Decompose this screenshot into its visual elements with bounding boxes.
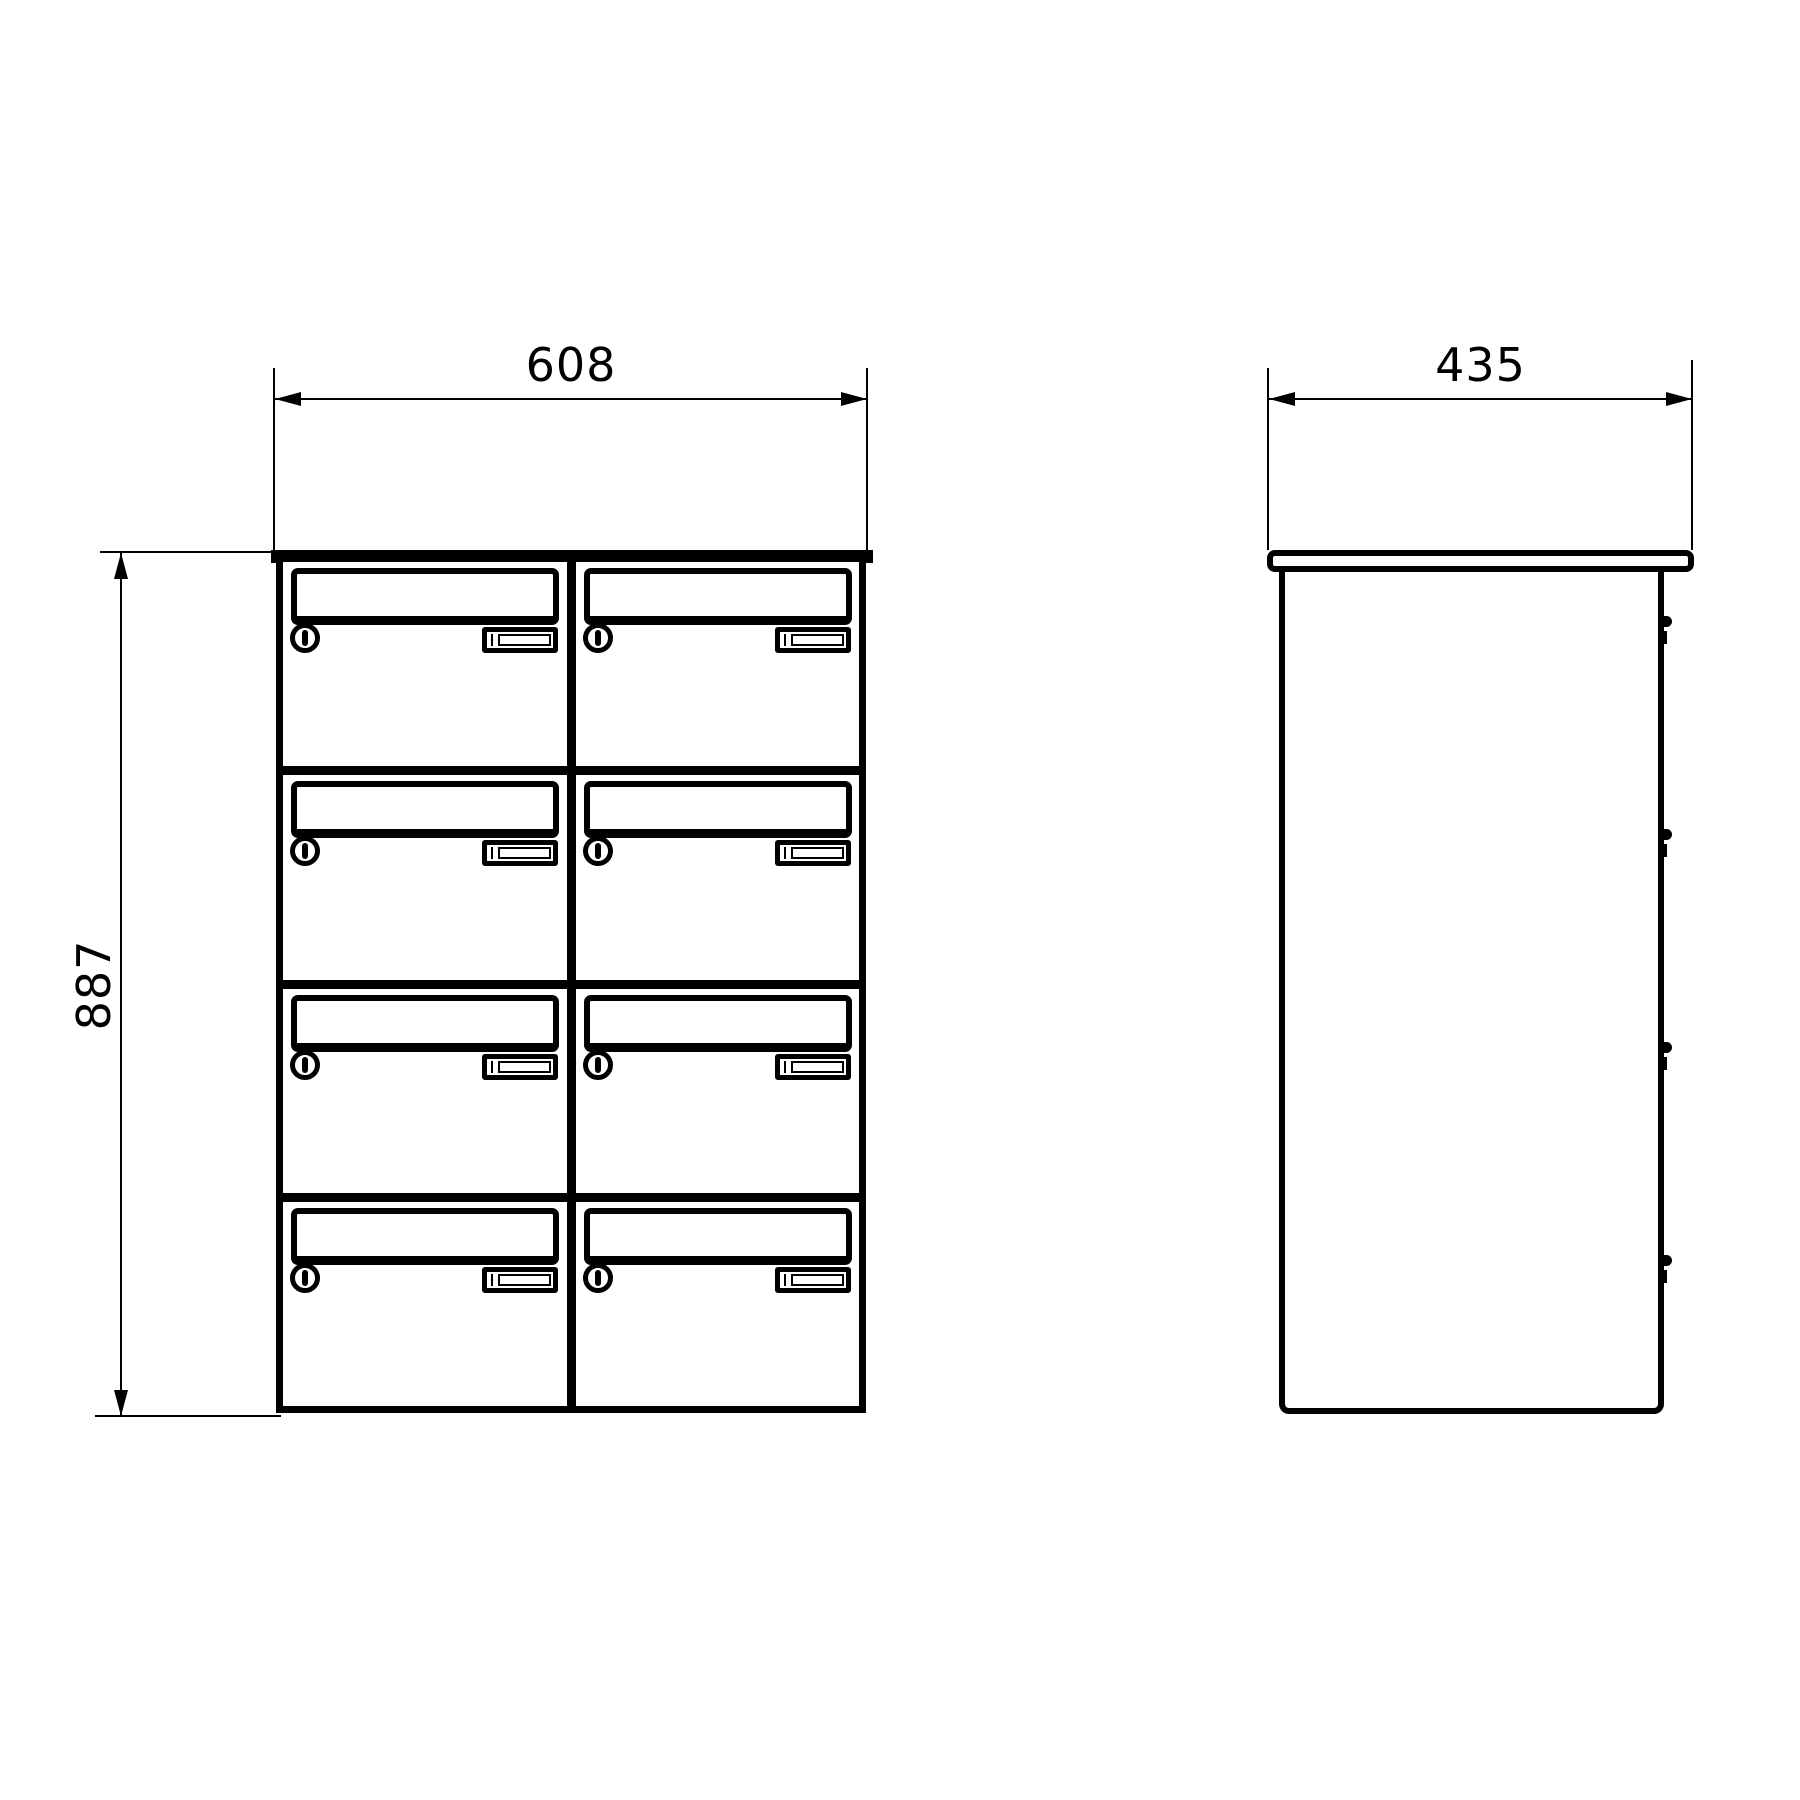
arrowhead-right-icon — [841, 392, 867, 406]
mailbox-cell — [576, 562, 860, 766]
hinge-strip-icon — [1658, 844, 1667, 857]
letter-flap — [291, 995, 559, 1052]
side-view-body — [1279, 571, 1664, 1414]
hinge-strip-icon — [1658, 1057, 1667, 1070]
keyhole-slot-icon — [595, 630, 601, 646]
dimension-line — [275, 398, 867, 400]
mailbox-cell — [283, 562, 567, 766]
keyhole-slot-icon — [302, 1057, 308, 1073]
name-plate — [775, 1267, 851, 1293]
name-plate-divider — [491, 634, 493, 646]
name-plate-divider — [784, 1061, 786, 1073]
mailbox-cell — [576, 775, 860, 979]
name-plate-window — [498, 1061, 551, 1073]
hinge-strip-icon — [1658, 631, 1667, 644]
letter-flap — [584, 781, 852, 838]
keyhole-slot-icon — [302, 843, 308, 859]
arrowhead-right-icon — [1666, 392, 1692, 406]
mailbox-cell — [576, 989, 860, 1193]
keyhole-slot-icon — [595, 1057, 601, 1073]
name-plate-window — [791, 847, 844, 859]
dimension-depth-label: 435 — [1269, 342, 1692, 388]
dimension-width-label: 608 — [275, 342, 867, 388]
hinge-nub-icon — [1658, 616, 1672, 627]
mailbox-cell — [283, 1202, 567, 1406]
keyhole-slot-icon — [302, 1270, 308, 1286]
name-plate-divider — [491, 1061, 493, 1073]
name-plate — [482, 1054, 558, 1080]
name-plate-window — [498, 634, 551, 646]
side-view-roof-cap — [1267, 550, 1694, 572]
keyhole-slot-icon — [302, 630, 308, 646]
name-plate-divider — [491, 847, 493, 859]
name-plate — [482, 840, 558, 866]
keyhole-slot-icon — [595, 1270, 601, 1286]
name-plate — [775, 1054, 851, 1080]
lock-cylinder-icon — [290, 836, 320, 866]
lock-cylinder-icon — [583, 623, 613, 653]
keyhole-slot-icon — [595, 843, 601, 859]
hinge-nub-icon — [1658, 829, 1672, 840]
name-plate-divider — [784, 847, 786, 859]
name-plate — [775, 840, 851, 866]
lock-cylinder-icon — [583, 836, 613, 866]
lock-cylinder-icon — [290, 623, 320, 653]
letter-flap — [291, 781, 559, 838]
mailbox-cell — [576, 1202, 860, 1406]
hinge-nub-icon — [1658, 1255, 1672, 1266]
name-plate — [775, 627, 851, 653]
front-view-mailbox-grid — [276, 562, 866, 1413]
name-plate — [482, 1267, 558, 1293]
name-plate-divider — [491, 1274, 493, 1286]
name-plate-window — [791, 634, 844, 646]
arrowhead-left-icon — [1269, 392, 1295, 406]
name-plate-window — [791, 1274, 844, 1286]
dimension-height-label: 887 — [71, 885, 117, 1085]
extension-line — [1691, 360, 1693, 550]
name-plate-window — [791, 1061, 844, 1073]
drawing-canvas: 608 435 887 — [0, 0, 1800, 1800]
letter-flap — [291, 1208, 559, 1265]
arrowhead-up-icon — [114, 553, 128, 579]
mailbox-cell — [283, 989, 567, 1193]
lock-cylinder-icon — [583, 1050, 613, 1080]
letter-flap — [584, 995, 852, 1052]
lock-cylinder-icon — [290, 1050, 320, 1080]
hinge-strip-icon — [1658, 1270, 1667, 1283]
name-plate-window — [498, 847, 551, 859]
dimension-line — [1269, 398, 1692, 400]
name-plate-divider — [784, 1274, 786, 1286]
letter-flap — [291, 568, 559, 625]
letter-flap — [584, 1208, 852, 1265]
arrowhead-left-icon — [275, 392, 301, 406]
hinge-nub-icon — [1658, 1042, 1672, 1053]
lock-cylinder-icon — [290, 1263, 320, 1293]
name-plate-divider — [784, 634, 786, 646]
letter-flap — [584, 568, 852, 625]
mailbox-cell — [283, 775, 567, 979]
arrowhead-down-icon — [114, 1390, 128, 1416]
name-plate — [482, 627, 558, 653]
name-plate-window — [498, 1274, 551, 1286]
lock-cylinder-icon — [583, 1263, 613, 1293]
